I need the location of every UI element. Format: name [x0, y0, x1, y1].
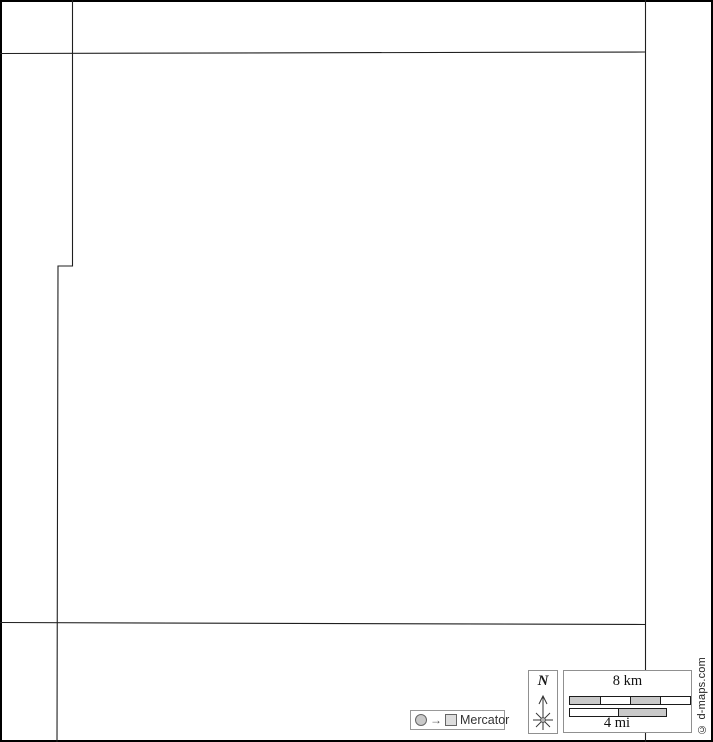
map-page: { "map": { "background": "#ffffff", "fra…	[0, 0, 713, 742]
scale-bar-tick	[630, 697, 631, 704]
projection-box: → Mercator	[410, 710, 505, 730]
compass-icon	[529, 691, 557, 733]
scale-bar-tick	[660, 697, 661, 704]
plane-icon	[445, 714, 457, 726]
scale-km-bar	[569, 696, 691, 705]
scale-mi-label: 4 mi	[564, 715, 670, 732]
scale-bar-segment	[570, 697, 600, 704]
scale-box: 8 km 4 mi	[563, 670, 692, 733]
north-county-boundary	[0, 52, 646, 54]
county-boundaries	[0, 0, 646, 742]
sphere-icon	[415, 714, 427, 726]
copyright-text: © d-maps.com	[693, 653, 711, 739]
north-label: N	[529, 671, 557, 691]
scale-bar-segment	[630, 697, 660, 704]
projection-label: Mercator	[460, 713, 509, 727]
scale-bar-tick	[600, 697, 601, 704]
map-frame-border	[1, 1, 712, 741]
arrow-right-icon: →	[430, 715, 442, 725]
map-canvas	[0, 0, 713, 742]
north-arrow-box: N	[528, 670, 558, 734]
scale-km-label: 8 km	[564, 673, 691, 690]
scale-bar-segment	[600, 697, 630, 704]
south-county-boundary	[0, 623, 646, 625]
west-county-boundary	[57, 0, 73, 742]
scale-bar-segment	[660, 697, 690, 704]
